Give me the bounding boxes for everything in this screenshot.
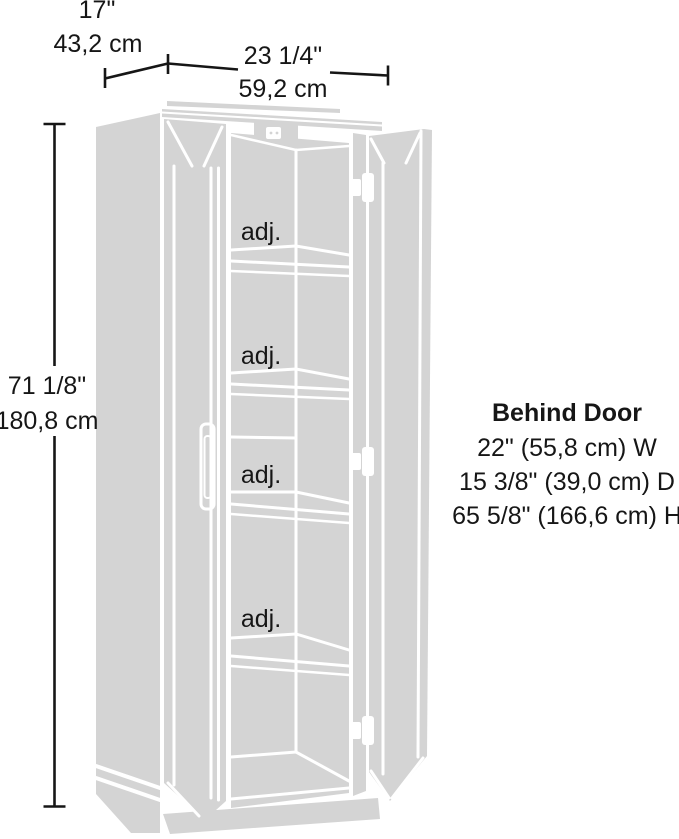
- shelf-label-1: adj.: [241, 218, 281, 246]
- shelf-label-4: adj.: [241, 605, 281, 633]
- width-cm-label: 59,2 cm: [239, 75, 328, 103]
- shelf-label-2: adj.: [241, 342, 281, 370]
- height-inches-label: 71 1/8": [8, 372, 86, 400]
- depth-inches-label: 17": [79, 0, 116, 24]
- behind-door-width: 22" (55,8 cm) W: [477, 434, 657, 462]
- depth-cm-label: 43,2 cm: [54, 30, 143, 58]
- behind-door-depth: 15 3/8" (39,0 cm) D: [459, 468, 675, 496]
- shelf-label-3: adj.: [241, 461, 281, 489]
- height-dimension-line: [44, 124, 66, 807]
- top-latch-detail: [266, 127, 281, 139]
- width-inches-label: 23 1/4": [244, 42, 322, 70]
- height-cm-label: 180,8 cm: [0, 407, 98, 435]
- depth-dimension-line: [105, 54, 168, 88]
- behind-door-height: 65 5/8" (166,6 cm) H: [452, 502, 679, 530]
- cabinet-right-door: [369, 129, 432, 801]
- cabinet-left-side-panel: [96, 113, 160, 833]
- behind-door-title: Behind Door: [492, 399, 642, 427]
- cabinet-dimension-diagram: 17" 43,2 cm 23 1/4" 59,2 cm 71 1/8" 180,…: [0, 0, 679, 839]
- behind-door-annotation: Behind Door 22" (55,8 cm) W 15 3/8" (39,…: [452, 399, 679, 530]
